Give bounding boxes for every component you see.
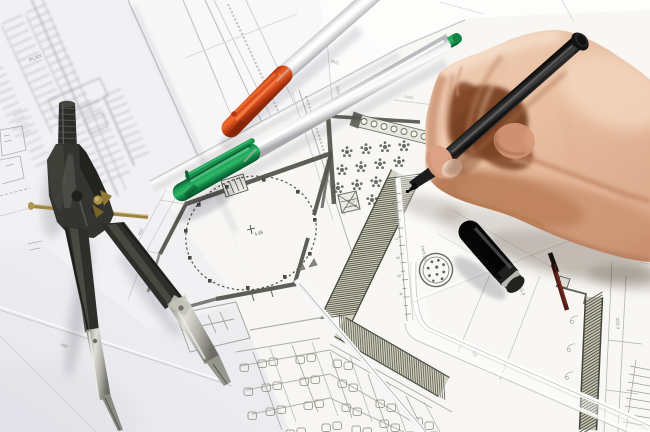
svg-text:203.4: 203.4 (615, 318, 621, 330)
